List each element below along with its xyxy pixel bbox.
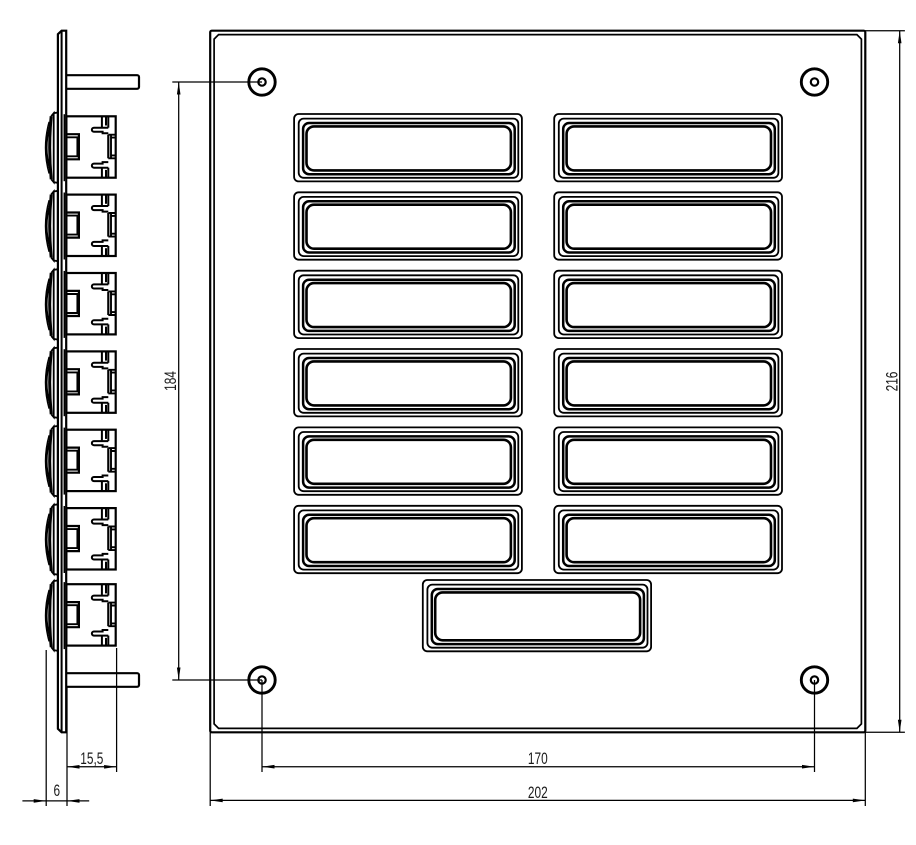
svg-text:6: 6 [53, 782, 60, 800]
svg-text:170: 170 [528, 750, 548, 768]
svg-text:216: 216 [884, 372, 902, 392]
svg-text:184: 184 [162, 371, 180, 391]
svg-text:202: 202 [528, 784, 548, 802]
svg-text:15,5: 15,5 [80, 750, 103, 768]
